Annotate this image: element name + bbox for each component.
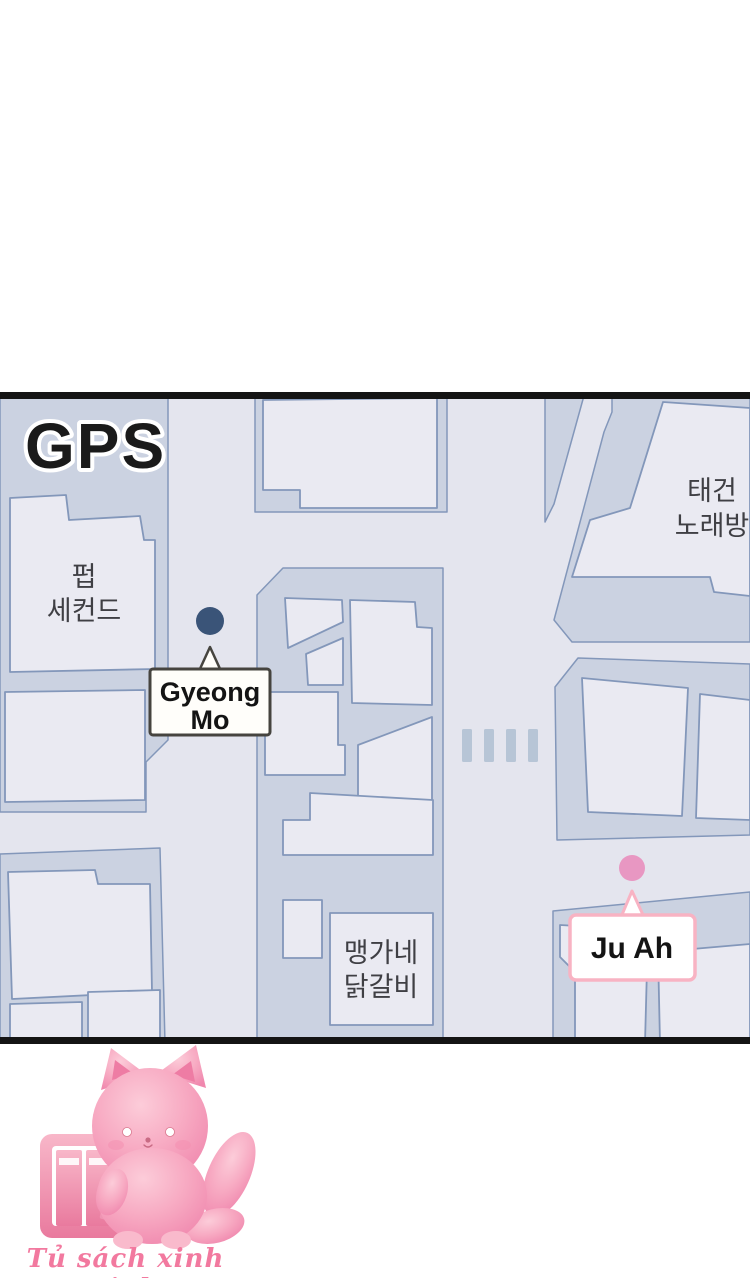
gps-label: GPS bbox=[25, 410, 166, 482]
building-maenggane bbox=[330, 913, 433, 1025]
gps-map-svg: GPS 펍 세컨드 태건 노래방 맹가네 닭갈비 Gyeong Mo bbox=[0, 392, 750, 1044]
gyeong-mo-dot bbox=[196, 607, 224, 635]
gps-map-panel: GPS 펍 세컨드 태건 노래방 맹가네 닭갈비 Gyeong Mo bbox=[0, 392, 750, 1044]
ju-ah-label: Ju Ah bbox=[591, 932, 673, 965]
ju-ah-dot bbox=[619, 855, 645, 881]
cat-eye-left bbox=[123, 1128, 132, 1137]
publisher-logo-text: Tủ sách xinh xinh bbox=[18, 1244, 233, 1278]
building-left-mid bbox=[5, 690, 145, 802]
panel-border-top bbox=[0, 392, 750, 399]
building-bottom-left-b bbox=[88, 990, 160, 1043]
label-taegeon-line1: 태건 bbox=[687, 476, 737, 506]
label-taegeon-line2: 노래방 bbox=[675, 511, 750, 541]
cat-nose bbox=[145, 1137, 150, 1142]
building-bottom-left-a bbox=[10, 1002, 82, 1043]
page: GPS 펍 세컨드 태건 노래방 맹가네 닭갈비 Gyeong Mo bbox=[0, 0, 750, 1278]
cat-mascot bbox=[90, 1045, 266, 1250]
mascot-illustration bbox=[0, 1044, 750, 1278]
gyeong-mo-label-line1: Gyeong bbox=[160, 677, 261, 707]
label-maenggane-line2: 닭갈비 bbox=[344, 972, 419, 1002]
cat-eye-right bbox=[166, 1128, 175, 1137]
label-pub-second-line1: 펍 bbox=[72, 562, 97, 592]
building-bottom-left-big bbox=[8, 870, 152, 999]
panel-border-bottom bbox=[0, 1037, 750, 1044]
label-maenggane-line1: 맹가네 bbox=[344, 938, 419, 968]
gyeong-mo-label-line2: Mo bbox=[191, 705, 230, 735]
label-pub-second-line2: 세컨드 bbox=[47, 596, 122, 626]
publisher-footer: Tủ sách xinh xinh bbox=[0, 1044, 750, 1278]
